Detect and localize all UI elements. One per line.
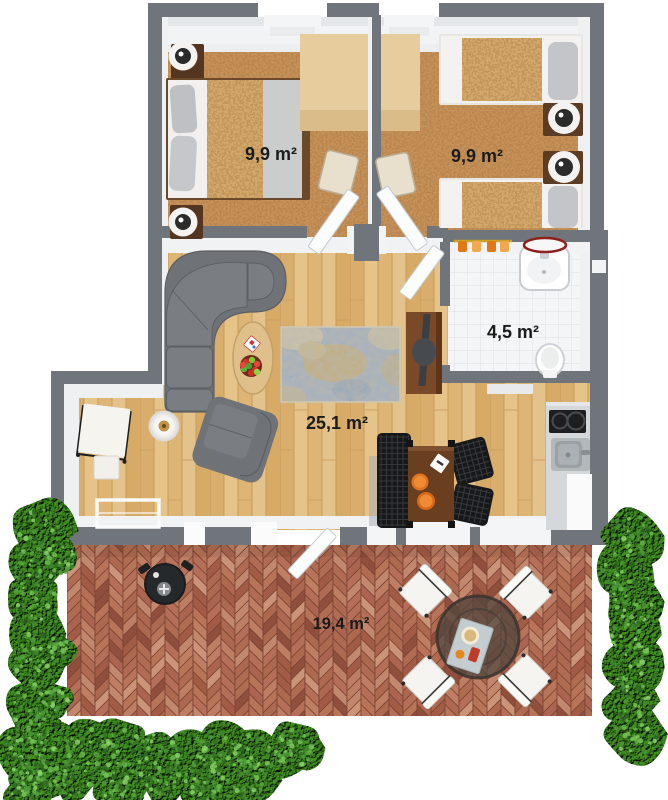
svg-text:9,9 m²: 9,9 m² <box>451 146 503 166</box>
svg-text:19,4 m²: 19,4 m² <box>313 615 370 633</box>
svg-text:4,5 m²: 4,5 m² <box>487 322 539 342</box>
svg-text:9,9 m²: 9,9 m² <box>245 144 297 164</box>
svg-text:25,1 m²: 25,1 m² <box>306 413 368 433</box>
